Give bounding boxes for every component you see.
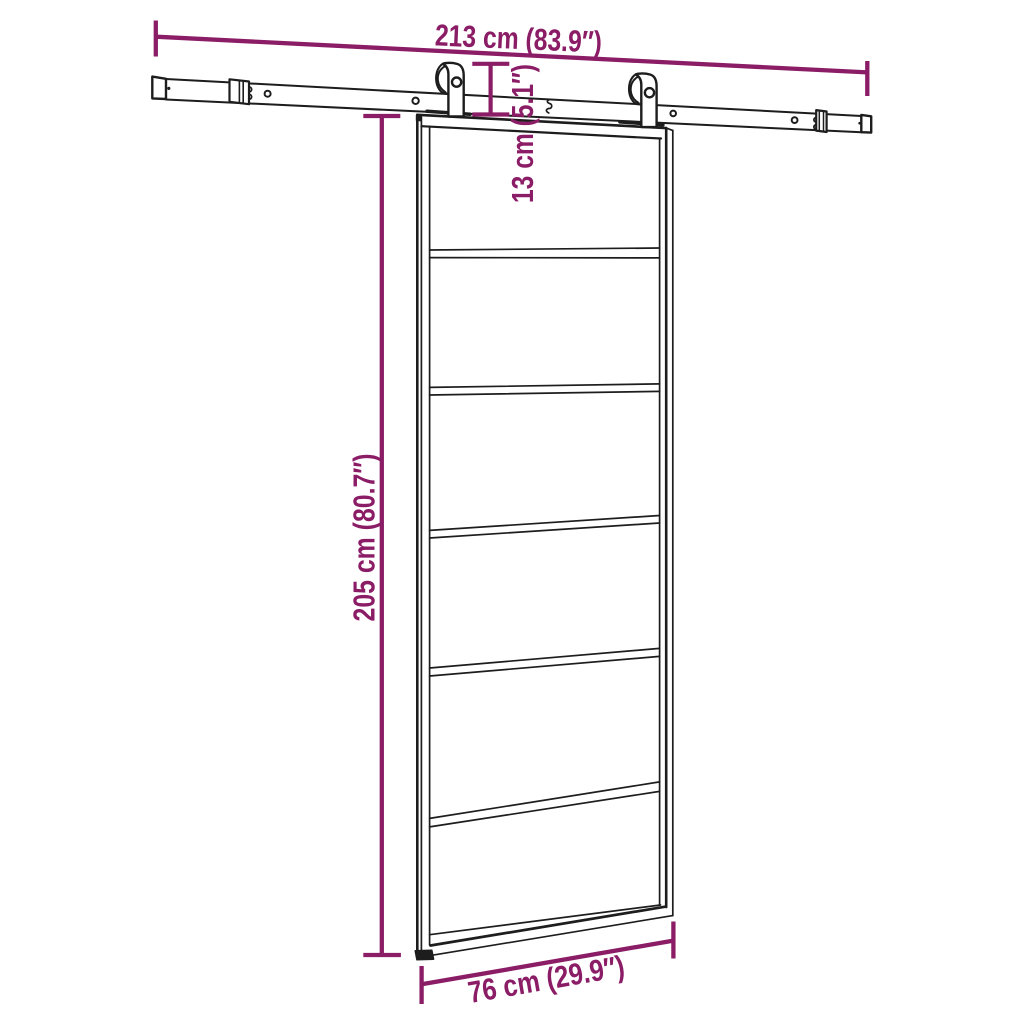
- svg-text:13 cm (5.1″): 13 cm (5.1″): [506, 64, 540, 203]
- svg-text:205 cm (80.7″): 205 cm (80.7″): [348, 454, 382, 622]
- svg-text:213 cm (83.9″): 213 cm (83.9″): [434, 18, 602, 59]
